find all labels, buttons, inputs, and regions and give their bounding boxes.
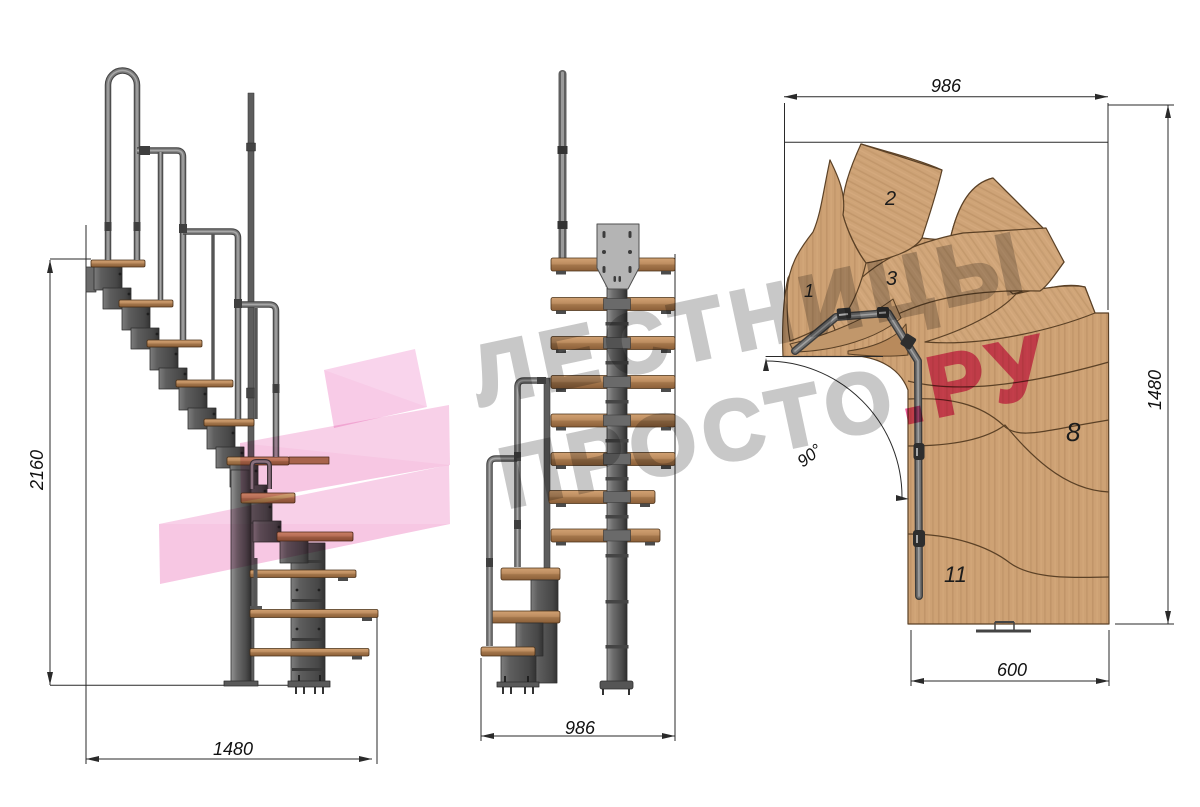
- svg-text:600: 600: [997, 660, 1027, 680]
- svg-text:2160: 2160: [27, 450, 47, 491]
- svg-text:1480: 1480: [213, 739, 253, 759]
- svg-text:11: 11: [944, 562, 967, 587]
- svg-text:986: 986: [565, 718, 596, 738]
- svg-text:8: 8: [1066, 417, 1081, 447]
- svg-text:986: 986: [931, 76, 962, 96]
- svg-text:2: 2: [884, 188, 896, 210]
- svg-text:1480: 1480: [1145, 370, 1165, 410]
